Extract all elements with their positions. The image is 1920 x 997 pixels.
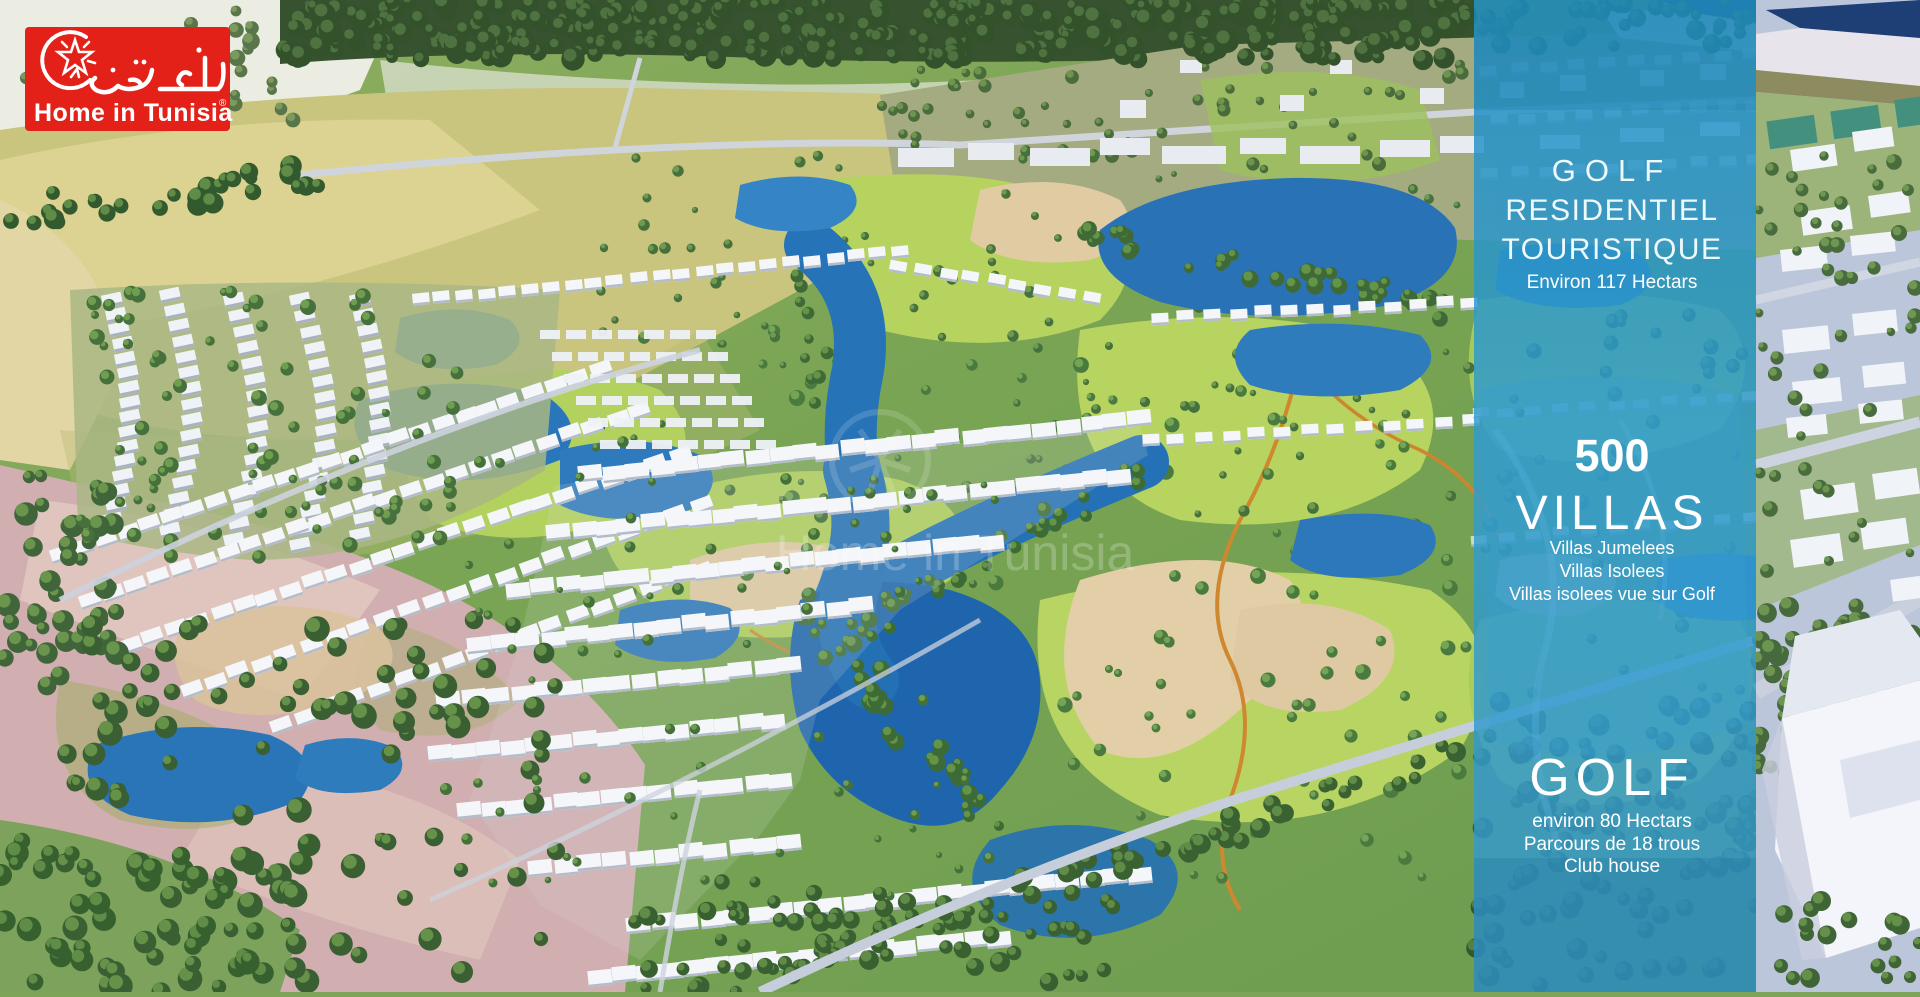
svg-text:Environ 117 Hectars: Environ 117 Hectars xyxy=(1527,272,1698,293)
svg-text:Villas isolees vue sur Golf: Villas isolees vue sur Golf xyxy=(1509,584,1716,604)
svg-text:500: 500 xyxy=(1574,430,1649,481)
svg-text:VILLAS: VILLAS xyxy=(1516,487,1709,540)
svg-text:RESIDENTIEL: RESIDENTIEL xyxy=(1505,194,1718,227)
svg-text:Home in Tunisia: Home in Tunisia xyxy=(34,99,233,127)
svg-text:Villas Isolees: Villas Isolees xyxy=(1560,561,1665,581)
svg-text:Home in Tunisia: Home in Tunisia xyxy=(776,525,1135,581)
svg-text:TOURISTIQUE: TOURISTIQUE xyxy=(1502,233,1723,266)
svg-text:Villas Jumelees: Villas Jumelees xyxy=(1550,538,1675,558)
svg-text:Parcours de 18 trous: Parcours de 18 trous xyxy=(1524,834,1700,855)
svg-text:GOLF: GOLF xyxy=(1529,749,1695,807)
svg-text:®: ® xyxy=(219,98,227,109)
svg-text:GOLF: GOLF xyxy=(1552,153,1672,188)
svg-text:Club house: Club house xyxy=(1564,856,1660,877)
svg-text:environ 80 Hectars: environ 80 Hectars xyxy=(1532,811,1691,832)
